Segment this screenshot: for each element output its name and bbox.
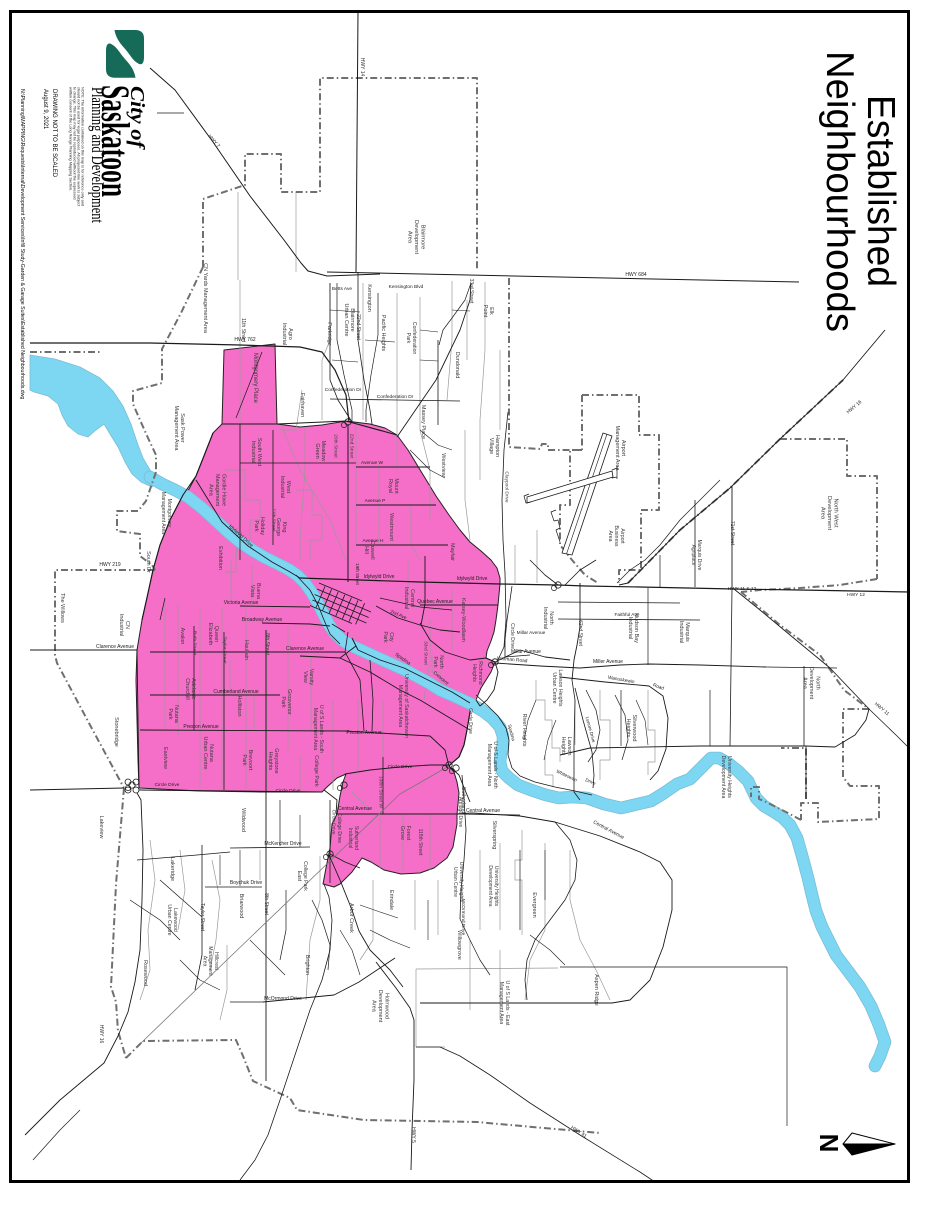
svg-text:Clarence Avenue: Clarence Avenue <box>286 646 324 652</box>
svg-text:City: City <box>388 632 394 642</box>
svg-text:HWY 684: HWY 684 <box>625 272 647 278</box>
svg-text:11th Street: 11th Street <box>271 508 277 532</box>
svg-text:Quebec Avenue: Quebec Avenue <box>417 599 453 605</box>
svg-text:North: North <box>548 611 554 624</box>
svg-text:Urban Centre: Urban Centre <box>551 672 557 703</box>
svg-text:Marquis: Marquis <box>684 622 690 642</box>
svg-text:Development: Development <box>826 496 832 531</box>
svg-text:N:\Planning\MAPPING\Requests\I: N:\Planning\MAPPING\Requests\Internal\De… <box>19 89 25 399</box>
svg-text:Varsity: Varsity <box>308 669 314 686</box>
svg-text:August 9, 2021: August 9, 2021 <box>42 89 48 130</box>
svg-text:Meadow: Meadow <box>320 441 326 462</box>
svg-text:Agro: Agro <box>287 328 293 340</box>
svg-text:Dundonald: Dundonald <box>454 352 460 379</box>
svg-text:Nutana: Nutana <box>208 744 214 763</box>
svg-text:Area: Area <box>607 531 613 542</box>
svg-text:Mount: Mount <box>393 478 399 494</box>
svg-text:Development: Development <box>377 990 383 1023</box>
svg-text:Westmount: Westmount <box>388 513 394 541</box>
svg-text:Urban Centre: Urban Centre <box>343 303 349 336</box>
svg-text:Massey Place: Massey Place <box>420 405 426 439</box>
svg-text:Planning and Development: Planning and Development <box>88 87 107 223</box>
svg-text:Hill: Hill <box>363 546 369 554</box>
svg-text:HWY 12: HWY 12 <box>847 592 865 598</box>
svg-text:College Drive: College Drive <box>336 813 342 843</box>
svg-text:East: East <box>296 871 302 882</box>
svg-text:HWY 762: HWY 762 <box>234 337 256 343</box>
svg-text:Holliston: Holliston <box>236 695 242 716</box>
svg-text:HWY 219: HWY 219 <box>99 562 121 568</box>
svg-text:33rd Street: 33rd Street <box>423 641 429 665</box>
svg-text:Park: Park <box>167 708 173 720</box>
svg-text:Established: Established <box>859 95 902 287</box>
svg-text:HWY 14: HWY 14 <box>359 58 365 77</box>
svg-text:Attridge Drive: Attridge Drive <box>457 797 463 828</box>
svg-text:Area: Area <box>201 956 207 967</box>
svg-text:71st Street: 71st Street <box>729 521 735 546</box>
svg-text:McOrmond Drive: McOrmond Drive <box>264 996 302 1002</box>
svg-text:Heights: Heights <box>267 752 273 771</box>
svg-text:Buena: Buena <box>255 583 261 600</box>
svg-text:Greystone: Greystone <box>273 748 279 773</box>
svg-text:Wildwood: Wildwood <box>240 808 246 832</box>
svg-text:Industrial: Industrial <box>118 614 124 636</box>
svg-text:Development: Development <box>808 667 814 700</box>
svg-text:Parkridge: Parkridge <box>326 322 332 346</box>
svg-text:Airport: Airport <box>620 440 626 457</box>
svg-text:Agriplace: Agriplace <box>690 545 696 566</box>
svg-text:Grove: Grove <box>399 826 405 840</box>
svg-text:Broadway Avenue: Broadway Avenue <box>242 617 282 623</box>
svg-text:The Willows: The Willows <box>59 593 65 623</box>
svg-text:Management Area: Management Area <box>397 685 403 728</box>
svg-text:Sask Power: Sask Power <box>179 413 185 443</box>
svg-text:Gordie Howe: Gordie Howe <box>220 474 226 506</box>
svg-text:Industrial: Industrial <box>403 587 409 609</box>
svg-text:Millar Avenue: Millar Avenue <box>511 649 541 655</box>
svg-text:View: View <box>302 671 308 683</box>
svg-text:Industrial: Industrial <box>678 621 684 643</box>
svg-text:Avalon: Avalon <box>179 628 185 645</box>
svg-text:Vista: Vista <box>249 585 255 598</box>
svg-text:Erindale: Erindale <box>388 890 394 910</box>
svg-text:Silverspring: Silverspring <box>491 821 497 850</box>
svg-text:Circle Drive: Circle Drive <box>331 810 337 835</box>
svg-text:Westview: Westview <box>440 453 446 476</box>
svg-text:Kensington: Kensington <box>366 284 372 312</box>
svg-text:Silverwood: Silverwood <box>631 715 637 742</box>
svg-text:108th Street W: 108th Street W <box>378 776 384 808</box>
svg-text:Industrial: Industrial <box>281 323 287 345</box>
svg-text:Area: Area <box>406 231 412 244</box>
svg-text:Royal: Royal <box>387 479 393 493</box>
svg-text:Circle Drive: Circle Drive <box>155 782 180 788</box>
svg-text:Cumberland Avenue: Cumberland Avenue <box>213 689 258 695</box>
svg-text:Fairhaven: Fairhaven <box>299 393 305 417</box>
svg-text:Elk: Elk <box>488 307 494 315</box>
svg-text:115th Street: 115th Street <box>417 829 423 856</box>
svg-text:Montgomery Place: Montgomery Place <box>252 353 258 404</box>
svg-text:Churchill: Churchill <box>184 678 190 699</box>
svg-text:Industrial: Industrial <box>627 617 633 639</box>
svg-text:Neighbourhoods: Neighbourhoods <box>818 51 861 332</box>
svg-text:River Heights: River Heights <box>521 713 527 746</box>
svg-text:Central Avenue: Central Avenue <box>338 806 372 812</box>
svg-text:Development: Development <box>413 220 419 255</box>
svg-text:Village: Village <box>488 438 494 454</box>
svg-text:Stonebridge: Stonebridge <box>113 717 119 747</box>
svg-text:Circle Drive: Circle Drive <box>388 764 413 770</box>
svg-text:Briarwood: Briarwood <box>238 894 244 919</box>
svg-text:Development Area: Development Area <box>720 756 726 799</box>
svg-text:Victoria Avenue: Victoria Avenue <box>224 600 259 606</box>
svg-text:King: King <box>281 521 287 532</box>
svg-text:Clarence Avenue: Clarence Avenue <box>96 644 134 650</box>
svg-text:Area: Area <box>802 677 808 690</box>
svg-text:Central Avenue: Central Avenue <box>466 808 500 814</box>
svg-text:Holiday: Holiday <box>259 517 265 536</box>
svg-text:Nutana: Nutana <box>173 705 179 724</box>
svg-text:Avenue H: Avenue H <box>363 538 385 544</box>
svg-text:N: N <box>814 1134 844 1153</box>
svg-text:McOrmond Drive: McOrmond Drive <box>460 899 466 936</box>
svg-text:Park: Park <box>382 631 388 643</box>
svg-text:Idylwyld Drive: Idylwyld Drive <box>457 576 488 582</box>
svg-text:19th Street: 19th Street <box>355 563 360 585</box>
svg-text:Kensington Blvd: Kensington Blvd <box>389 284 424 290</box>
svg-text:Lawson: Lawson <box>566 737 572 756</box>
svg-text:Haultain: Haultain <box>243 640 249 660</box>
svg-text:Central: Central <box>409 589 415 607</box>
svg-text:Claypool Drive: Claypool Drive <box>504 471 510 503</box>
svg-text:Lakeview: Lakeview <box>98 816 104 839</box>
svg-text:CN: CN <box>124 621 130 629</box>
svg-text:HWY 11 & 12: HWY 11 & 12 <box>728 586 757 592</box>
svg-text:Area: Area <box>819 507 825 520</box>
svg-text:DRAWING NOT TO BE SCALED: DRAWING NOT TO BE SCALED <box>51 89 57 178</box>
svg-text:Elizabeth: Elizabeth <box>207 623 213 646</box>
svg-text:Confederation Dr: Confederation Dr <box>377 394 414 400</box>
svg-text:Eastview: Eastview <box>162 747 168 769</box>
svg-text:Queen: Queen <box>213 626 219 643</box>
svg-text:Green: Green <box>314 443 320 458</box>
svg-text:Brighton: Brighton <box>304 955 310 976</box>
svg-text:8th Street: 8th Street <box>263 893 269 915</box>
svg-text:Blairmore: Blairmore <box>420 225 426 250</box>
svg-text:Heights: Heights <box>560 737 566 756</box>
svg-text:Heights: Heights <box>625 719 631 738</box>
svg-text:22nd Street: 22nd Street <box>355 314 361 340</box>
svg-text:Industrial: Industrial <box>250 441 256 463</box>
svg-text:South Dr: South Dr <box>145 551 151 573</box>
svg-text:Management Area: Management Area <box>486 744 492 787</box>
svg-text:Management: Management <box>214 474 220 507</box>
svg-text:Aspen Ridge: Aspen Ridge <box>593 974 599 1006</box>
svg-text:CN Yards Management Area: CN Yards Management Area <box>202 263 208 334</box>
svg-text:McKercher Drive: McKercher Drive <box>264 841 301 847</box>
svg-text:College Park: College Park <box>313 755 319 787</box>
svg-text:Hampton: Hampton <box>494 435 500 457</box>
svg-text:Industrial: Industrial <box>279 476 285 498</box>
svg-text:Ruth Street: Ruth Street <box>192 631 198 656</box>
svg-text:33rd Street: 33rd Street <box>468 279 474 304</box>
svg-text:Evergreen: Evergreen <box>531 892 537 917</box>
svg-text:North West: North West <box>833 499 839 528</box>
svg-text:Park: Park <box>253 520 259 532</box>
svg-text:Park: Park <box>280 696 286 708</box>
svg-text:Preston Avenue: Preston Avenue <box>183 724 218 730</box>
svg-text:Management Area: Management Area <box>614 426 620 472</box>
svg-text:Park: Park <box>241 754 247 766</box>
svg-text:Holmwood: Holmwood <box>383 993 389 1019</box>
svg-text:Point: Point <box>482 305 488 318</box>
svg-text:Mayfair: Mayfair <box>449 543 455 561</box>
svg-text:Idylwyld Drive: Idylwyld Drive <box>364 574 395 580</box>
svg-text:20th Street: 20th Street <box>333 434 339 458</box>
svg-text:Urban Centre: Urban Centre <box>166 904 172 935</box>
svg-text:Exhibition: Exhibition <box>217 546 223 570</box>
svg-text:North: North <box>438 655 444 668</box>
svg-text:Boychuk Drive: Boychuk Drive <box>230 880 262 886</box>
svg-text:Miller Avenue: Miller Avenue <box>593 659 623 665</box>
svg-text:written consent of the Long Ra: written consent of the Long Range Planni… <box>69 87 73 191</box>
svg-text:Industrial: Industrial <box>347 828 353 848</box>
svg-text:62nd Street: 62nd Street <box>577 620 583 646</box>
svg-text:Preston Avenue: Preston Avenue <box>346 730 381 736</box>
svg-text:Management Area: Management Area <box>173 406 179 452</box>
svg-text:Kelsey-Woodlawn: Kelsey-Woodlawn <box>460 598 466 642</box>
svg-text:Avenue W: Avenue W <box>361 460 384 466</box>
svg-text:Management Area: Management Area <box>312 708 318 751</box>
svg-text:Confederation Dr: Confederation Dr <box>325 387 362 393</box>
svg-text:Urban Centre: Urban Centre <box>452 867 458 897</box>
svg-text:Circle Drive: Circle Drive <box>509 623 515 649</box>
svg-text:Betts Ave: Betts Ave <box>332 286 353 292</box>
svg-text:Taylor Street: Taylor Street <box>199 903 205 932</box>
svg-text:Brevoort: Brevoort <box>247 750 253 771</box>
svg-text:South West: South West <box>256 438 262 467</box>
svg-text:Avenue P: Avenue P <box>365 498 386 504</box>
svg-text:HWY 5: HWY 5 <box>410 1127 416 1143</box>
svg-text:Faithful Ave: Faithful Ave <box>615 612 640 618</box>
svg-text:Management Area: Management Area <box>160 492 166 535</box>
svg-text:Circle Drive: Circle Drive <box>276 788 301 794</box>
svg-text:Heights: Heights <box>471 664 477 682</box>
svg-text:North: North <box>814 676 820 689</box>
svg-text:Industrial: Industrial <box>542 607 548 629</box>
svg-text:Area: Area <box>371 1000 377 1013</box>
svg-text:8th Street: 8th Street <box>264 633 270 655</box>
svg-text:Taylor Street: Taylor Street <box>222 637 228 665</box>
svg-text:Park: Park <box>405 333 411 344</box>
svg-text:Grosvenor: Grosvenor <box>286 689 292 715</box>
svg-text:Circle Drive: Circle Drive <box>467 708 473 734</box>
svg-text:Millar Avenue: Millar Avenue <box>517 630 546 636</box>
svg-text:Urban Centre: Urban Centre <box>202 736 208 769</box>
svg-text:Pacific Heights: Pacific Heights <box>380 315 386 352</box>
svg-text:22nd Street: 22nd Street <box>349 434 355 459</box>
svg-text:Adelaide: Adelaide <box>190 678 196 699</box>
svg-text:Lakeridge: Lakeridge <box>169 857 175 881</box>
svg-text:Park: Park <box>432 656 438 668</box>
svg-text:Area: Area <box>208 484 214 497</box>
svg-text:HWY 16: HWY 16 <box>98 1025 104 1044</box>
svg-text:Development Area: Development Area <box>487 865 493 906</box>
svg-text:West: West <box>285 481 291 494</box>
svg-text:Management Area: Management Area <box>498 982 504 1025</box>
svg-text:Rosewood: Rosewood <box>142 960 148 986</box>
svg-text:Blairmore: Blairmore <box>349 308 355 332</box>
svg-text:Arbor Creek: Arbor Creek <box>348 903 354 933</box>
